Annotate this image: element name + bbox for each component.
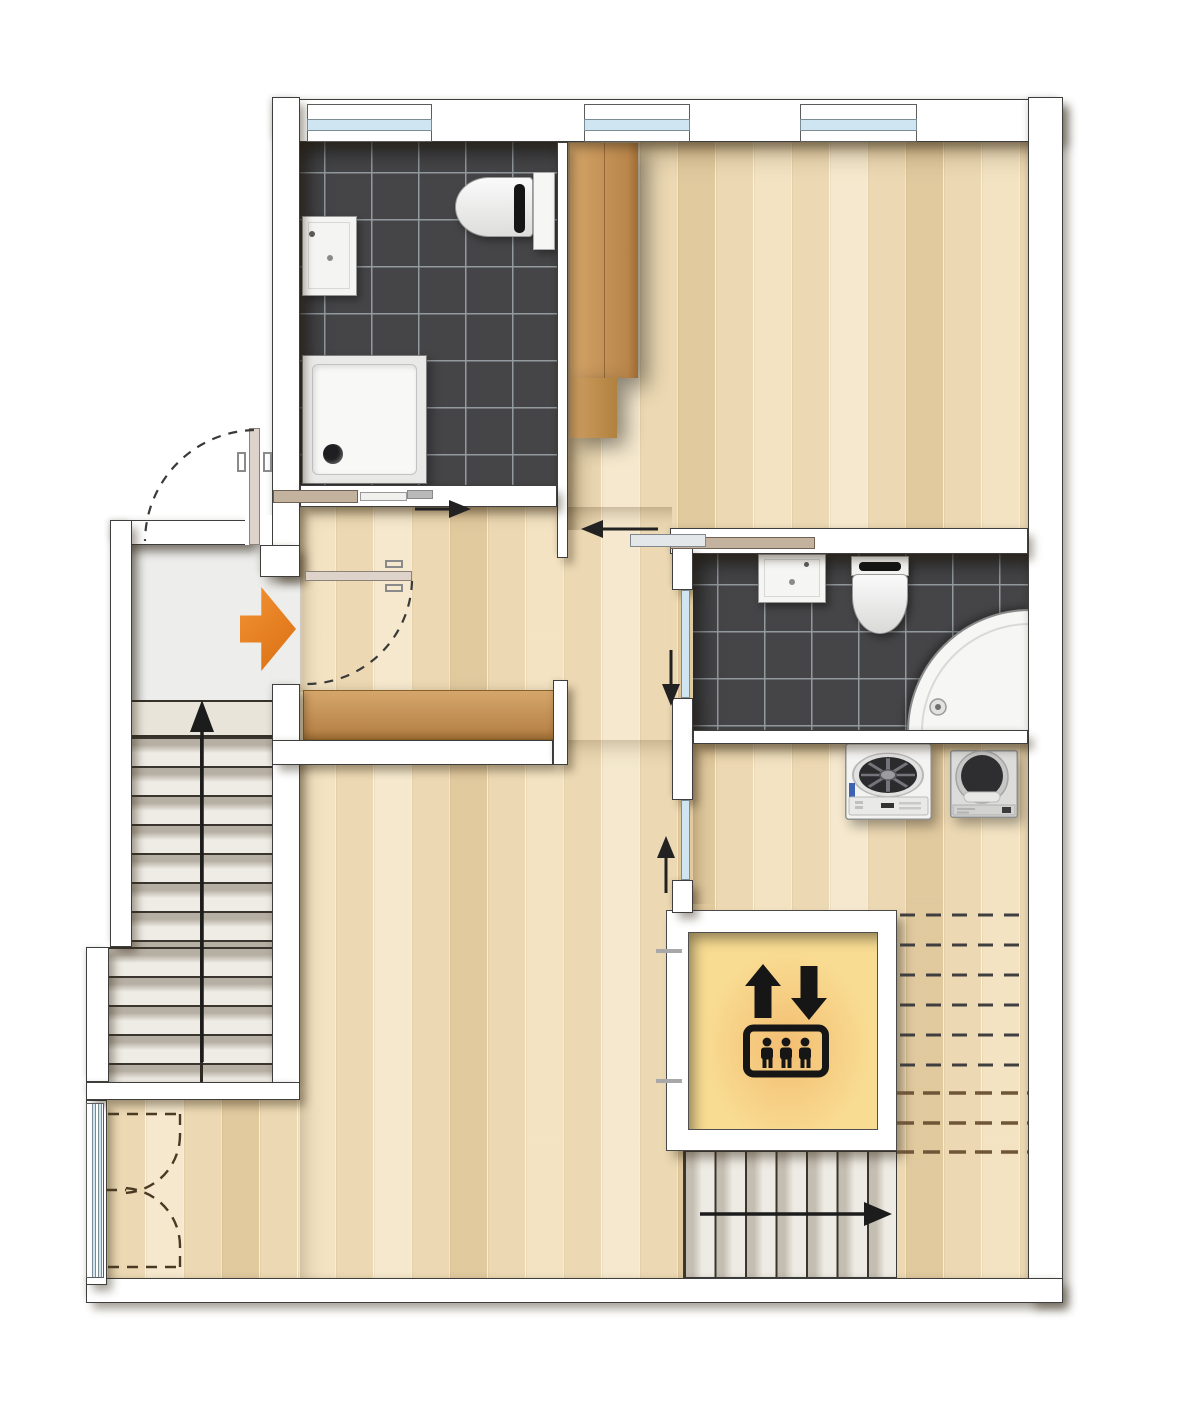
wall-south [86,1278,1063,1303]
stairs-west-stringer [200,737,203,1082]
elevator-icon [740,962,832,1080]
landing-step [132,700,272,737]
entrance-door-hinge-bottom [385,584,403,592]
window-north-2 [584,104,690,142]
corner-shower [895,600,1035,740]
washbasin-top-drain [327,255,333,261]
toilet-top [455,172,555,250]
wardrobe-bedroom-lower [570,378,617,438]
wardrobe-bedroom [570,143,638,378]
landing-door-frame-right [263,452,272,472]
wall-bathright-west-3 [672,880,693,913]
wall-hall-south-return [553,680,568,765]
wall-stair-left-lower [86,947,109,1082]
tumble-dryer [950,750,1018,818]
window-north-3 [800,104,917,142]
wall-entrance-notch [260,545,300,577]
exterior-left-lower [50,947,86,1317]
elevator-up-down-arrows [745,964,827,1020]
toilet-right-slot [859,562,901,571]
french-window-west [86,1103,104,1278]
sliding-glass-door-bathright [681,590,690,698]
window-north-3-glass [800,119,917,131]
window-north-1-glass [307,119,432,131]
window-north-1 [307,104,432,142]
toilet-top-cistern [533,172,555,250]
shaft-rail-mark-lower [656,1079,682,1083]
wardrobe-door-seam [604,143,605,378]
sliding-door-bath-top-rail [360,492,407,501]
wall-bathright-west-2 [672,698,693,800]
sliding-door-bedroom-panel [630,534,706,547]
elevator-passengers [761,1038,811,1068]
toilet-top-slot [514,184,525,233]
wall-stair-left-upper [110,520,132,947]
washing-machine [845,743,932,820]
washbasin-top-faucet [309,231,315,237]
shower-tray [302,355,427,484]
french-window-glass-outer [92,1104,96,1277]
french-window-glass-inner [98,1104,102,1277]
sliding-glass-door-laundry [681,800,690,880]
washbasin-right-faucet [804,562,809,567]
sliding-door-bath-top-jamb [407,490,433,499]
stairs-south [683,1151,897,1278]
entrance-door-leaf [305,571,412,581]
exterior-left-upper [50,520,110,947]
stairs-west-lower-treads [109,947,272,1082]
floor-plan-canvas [0,0,1183,1423]
washbasin-right-drain [789,579,795,585]
entrance-door-hinge-top [385,560,403,568]
shaft-rail-mark-upper [656,949,682,953]
wall-bathright-west-1 [672,546,693,590]
wall-divider-bath-bedroom [557,142,568,558]
sliding-door-bath-top-panel [273,490,358,503]
sideboard-hallway [303,690,554,740]
window-north-2-glass [584,119,690,131]
wall-hall-south [272,740,553,765]
landing-door-frame-left [237,452,246,472]
wall-bathright-south [693,730,1028,744]
washbasin-right-inner [764,559,820,597]
wall-bath-left-upper [272,97,300,577]
washbasin-right [758,554,826,603]
landing-door-leaf [249,428,260,545]
washbasin-top [302,216,357,296]
wall-east [1028,97,1063,1303]
shower-drain [323,444,343,464]
wall-stair-south [86,1082,300,1100]
